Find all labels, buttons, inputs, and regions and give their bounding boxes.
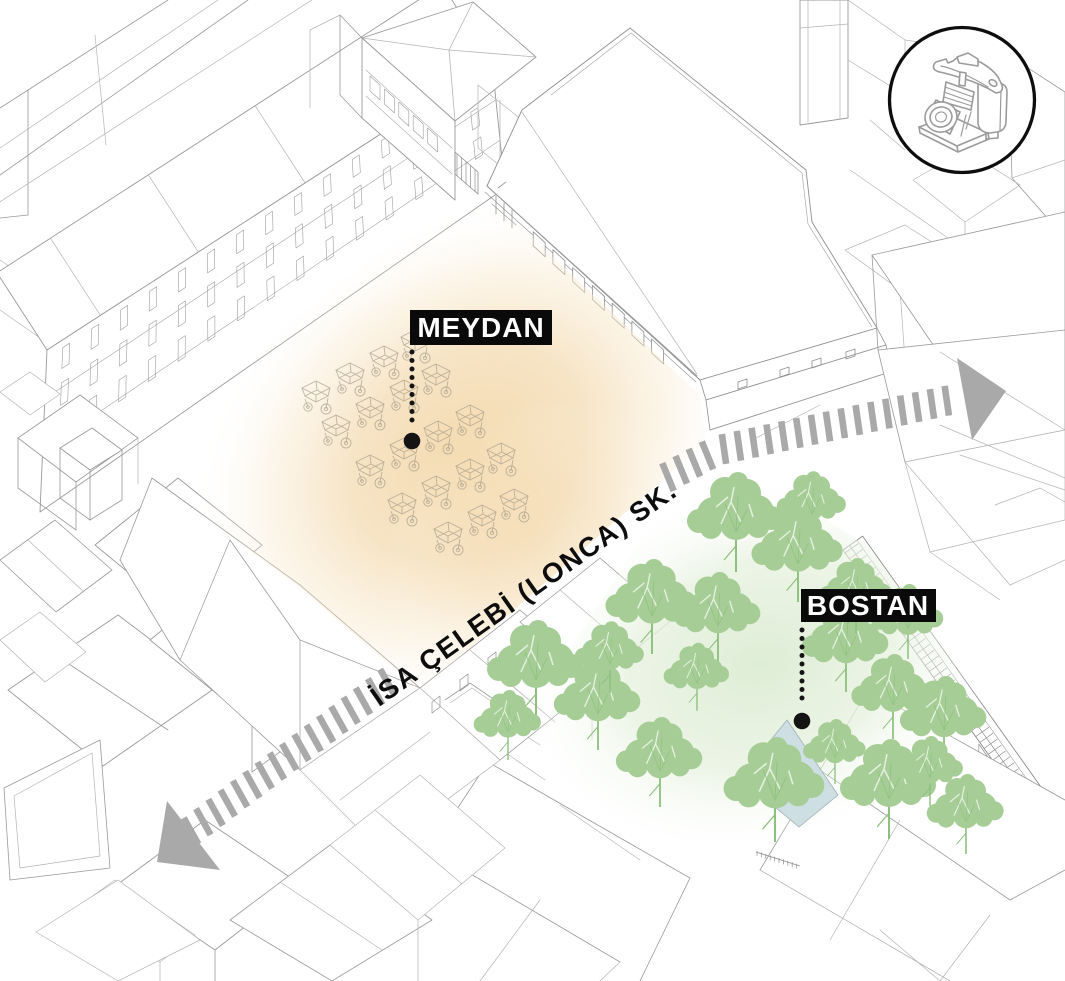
svg-text:BOSTAN: BOSTAN — [807, 590, 929, 621]
svg-text:MEYDAN: MEYDAN — [417, 312, 544, 343]
